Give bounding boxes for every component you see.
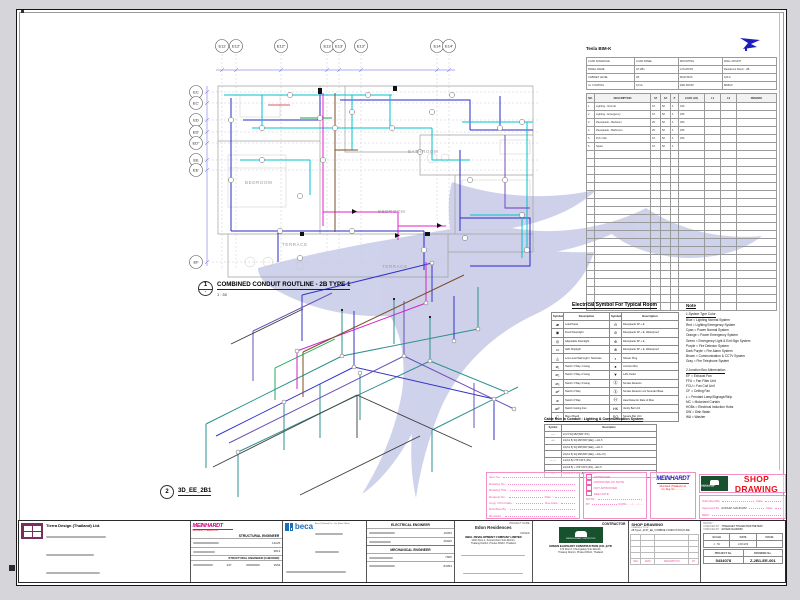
structural-block: MEINHARDT Meinhardt (Thailand) Ltd. STRU… [191, 521, 284, 582]
electrical-shop-drawing-sheet: BATHROOM BEDROOM BEDROOM TERRACE TERRACE… [0, 0, 800, 600]
drawing-title-value: 2B Type1_21ST_EE_COMBINE CONDUIT ROUTLIN… [629, 529, 700, 532]
registration-mark [21, 10, 24, 13]
view-number: 2 [161, 486, 173, 499]
green-elephant-logo: GREEN ELEPHANT CONSTRUCTION [701, 476, 728, 491]
signature-box: Submitted ByDate Approved ByAOISAK NAUDO… [699, 495, 786, 519]
date-value: 24/04/09 [730, 541, 756, 548]
shop-drawing-title-block: SHOP DRAWING DRAWING TITLE : 2B Type1_21… [629, 521, 701, 582]
revision-table: REVDATEDESCRIPTIONBY [630, 534, 699, 565]
approval-option-label: NOT APPROVED [594, 486, 618, 490]
cable-table-title: Cable Run In Conduit : Lighting & Commun… [544, 417, 643, 422]
electrical-symbol-legend: Electrical Symbol For Typical Room Symbo… [551, 302, 678, 422]
load-schedule-block: Tesla BIM-K LOAD SCHEDULELOAD PANELMOUNT… [586, 46, 777, 311]
project-number: 5434078 [704, 557, 744, 564]
approver-name: AOISAK NAUDOM [721, 506, 746, 510]
schedule-title: Tesla BIM-K [586, 46, 777, 51]
approval-checkbox[interactable] [586, 491, 592, 497]
plan-view-title: 1 - COMBINED CONDUIT ROUTLINE - 2B TYPE … [198, 281, 350, 297]
shop-drawing-stamp-box: GREEN ELEPHANT CONSTRUCTION SHOP DRAWING [699, 474, 786, 493]
legend-title: Electrical Symbol For Typical Room [572, 302, 657, 309]
approval-option-label: APPROVED [594, 475, 611, 479]
shop-drawing-stamp-text: SHOP DRAWING [728, 474, 785, 494]
title-block: Tierra Design (Thailand) Ltd. ARCHITECT … [18, 520, 786, 583]
tierra-logo [21, 523, 43, 539]
mechanical-role: MECHANICAL ENGINEER [367, 545, 454, 554]
system-color-item: Gray = Fire Telephone System [686, 359, 786, 364]
schedule-meta-table: LOAD SCHEDULELOAD PANELMOUNTINGWALL MOUN… [586, 57, 777, 90]
beca-logo-text: beca [295, 523, 313, 531]
approval-checkbox-box: APPROVED APPROVED AS NOTE NOT APPROVED S… [583, 472, 647, 519]
checked-by-2: AOISAK NAUDOM [721, 528, 742, 531]
system-color-list: Blue = Lighting Normal SystemRed = Light… [686, 318, 786, 364]
meinhardt-logo-magenta: MEINHARDT [193, 523, 281, 529]
schedule-main-table: NO.DESCRIPTIONATAFPLOAD (VA)L1L2REMARK 1… [586, 93, 777, 311]
drawing-number: Z-2B1-EE-001 [743, 557, 783, 564]
green-elephant-logo: GREEN ELEPHANT CONSTRUCTION [559, 527, 603, 543]
plan-scale: 1 : 50 [217, 292, 350, 297]
plan-title-text: COMBINED CONDUIT ROUTLINE - 2B TYPE 1 [217, 281, 350, 290]
approval-option-label: APPROVED AS NOTE [594, 480, 625, 484]
beca-logo-icon [285, 523, 293, 531]
meinhardt-logo: MEINHARDT [651, 476, 695, 482]
approval-option-label: SEE NOTE [594, 492, 609, 496]
sanitary-block: beca Beca (Thailand) Co., Ltd. (Head Off… [283, 521, 367, 582]
scale-value: 1 : 50 [704, 541, 730, 548]
junction-abbrev-list: EF = Exhaust FanFFU = Fan Filter UnitFCU… [686, 374, 786, 420]
iso-view-title: 2 3D_EE_2B1 [160, 485, 211, 499]
notes-block: Note 1.System Type Color Blue = Lighting… [686, 303, 786, 420]
iso-title-text: 3D_EE_2B1 [178, 488, 211, 496]
architect-block: Tierra Design (Thailand) Ltd. ARCHITECT … [19, 521, 191, 582]
registration-mark [9, 565, 15, 571]
meinhardt-stamp-box: MEINHARDT Meinhardt (Thailand) Ltd. Co. … [650, 472, 696, 519]
notes-title: Note [686, 303, 696, 309]
contractor-block: CONTRACTOR GREEN ELEPHANT CONSTRUCTION G… [533, 521, 630, 582]
project-block: PROJECT NAME Edon Residences OWNER AWAL … [455, 521, 533, 582]
electrical-mechanical-block: ELECTRICAL ENGINEER 19453 29026 MECHANIC… [367, 521, 455, 582]
document-control-box: Item No : Drawing No : Drawing Title : R… [486, 472, 580, 519]
electrical-role: ELECTRICAL ENGINEER [367, 521, 454, 529]
junction-abbrev-item: WA = Washer [686, 415, 786, 420]
drawing-info-block: DRN BY : CHECKED BY : THANAGET THANACHOK… [701, 521, 785, 582]
cable-run-table-block: Cable Run In Conduit : Lighting & Commun… [544, 417, 656, 478]
